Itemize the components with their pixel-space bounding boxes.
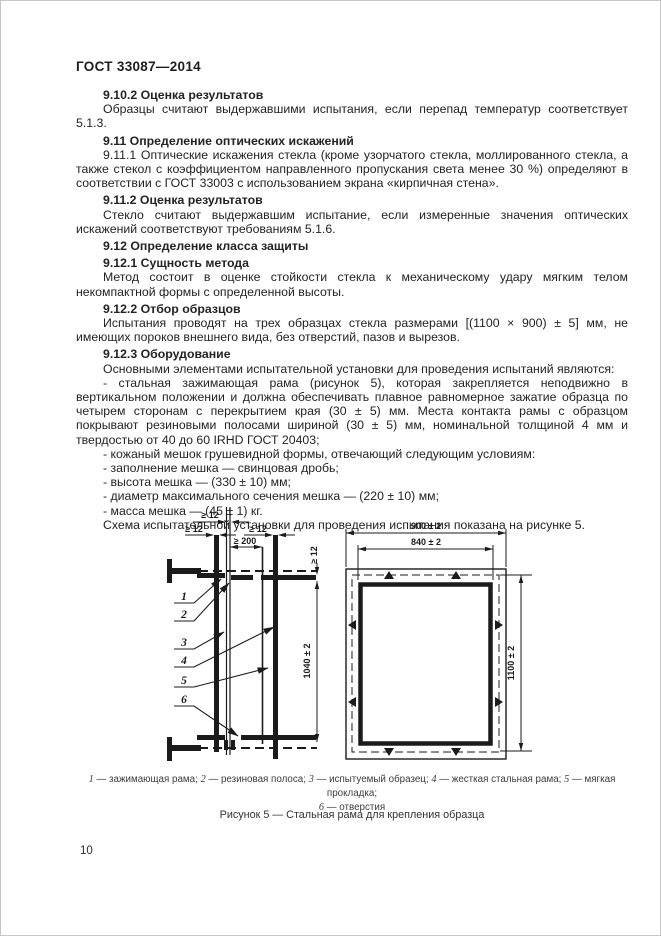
- front-dimensions: 900 ± 2 840 ± 2 1100 ± 2: [346, 521, 532, 751]
- legend-item-text: жесткая стальная рама: [452, 774, 559, 785]
- callout-number: 4: [180, 655, 187, 667]
- callouts: 1 2 3 4 5 6: [174, 579, 274, 736]
- paragraph: Метод состоит в оценке стойкости стекла …: [76, 270, 628, 298]
- dimension-label: 840 ± 2: [411, 537, 441, 547]
- document-header: ГОСТ 33087—2014: [76, 59, 201, 74]
- dimension-label: ≥ 12: [185, 524, 202, 534]
- paragraph: Испытания проводят на трех образцах стек…: [76, 316, 628, 344]
- dimension-label: 900 ± 2: [411, 521, 441, 531]
- callout-number: 2: [180, 609, 187, 621]
- legend-item-number: 1: [89, 774, 94, 785]
- callout-number: 6: [181, 694, 187, 706]
- legend-item-text: испытуемый образец: [329, 774, 426, 785]
- section-dimensions: ≥ 12 ≥ 12 ≥ 12 ≥ 200 ≥ 12: [185, 510, 319, 742]
- dimension-label: 1100 ± 2: [506, 646, 516, 680]
- front-view: 900 ± 2 840 ± 2 1100 ± 2: [346, 521, 532, 759]
- legend-item-number: 5: [564, 774, 569, 785]
- callout-number: 1: [181, 591, 187, 603]
- clamping-frame-opening: [361, 585, 491, 744]
- section-view: ≥ 12 ≥ 12 ≥ 12 ≥ 200 ≥ 12: [167, 507, 319, 761]
- figure-caption: Рисунок 5 — Стальная рама для крепления …: [76, 809, 628, 821]
- figure-legend-line: 1 — зажимающая рама; 2 — резиновая полос…: [76, 773, 628, 801]
- paragraph: - стальная зажимающая рама (рисунок 5), …: [76, 376, 628, 447]
- callout-number: 5: [181, 675, 187, 687]
- paragraph: 9.11.1 Оптические искажения стекла (кром…: [76, 148, 628, 191]
- legend-item-text: резиновая полоса: [221, 774, 303, 785]
- paragraph: - заполнение мешка — свинцовая дробь;: [76, 461, 628, 475]
- section-heading: 9.10.2 Оценка результатов: [76, 88, 628, 102]
- section-heading: 9.12.2 Отбор образцов: [76, 302, 628, 316]
- section-heading: 9.11 Определение оптических искажений: [76, 134, 628, 148]
- hole-markers: [348, 571, 503, 756]
- legend-item-text: зажимающая рама: [109, 774, 195, 785]
- body-text: 9.10.2 Оценка результатовОбразцы считают…: [76, 85, 628, 532]
- dimension-label: 1040 ± 2: [302, 644, 312, 679]
- bolt-bottom: [167, 737, 201, 761]
- steel-frame-plate: [273, 535, 278, 759]
- legend-item-number: 3: [309, 774, 314, 785]
- callout-number: 3: [180, 637, 187, 649]
- hole-centerline: [352, 575, 499, 752]
- dimension-label: ≥ 12: [249, 524, 266, 534]
- section-heading: 9.12 Определение класса защиты: [76, 239, 628, 253]
- dimension-label: ≥ 12: [201, 510, 218, 520]
- outer-frame: [346, 569, 506, 759]
- bolt-top: [167, 559, 201, 583]
- paragraph: Стекло считают выдержавшим испытание, ес…: [76, 208, 628, 236]
- page-number: 10: [80, 845, 93, 857]
- dimension-label: ≥ 12: [309, 546, 319, 563]
- legend-item-number: 4: [431, 774, 436, 785]
- clamping-frame-plate: [214, 535, 219, 752]
- section-heading: 9.12.3 Оборудование: [76, 347, 628, 361]
- figure-drawing: ≥ 12 ≥ 12 ≥ 12 ≥ 200 ≥ 12: [141, 497, 561, 787]
- dimension-label: ≥ 200: [234, 536, 256, 546]
- legend-item-number: 2: [201, 774, 206, 785]
- section-heading: 9.12.1 Сущность метода: [76, 256, 628, 270]
- paragraph: Образцы считают выдержавшими испытания, …: [76, 102, 628, 130]
- paragraph: - высота мешка — (330 ± 10) мм;: [76, 475, 628, 489]
- document-page: ГОСТ 33087—2014 9.10.2 Оценка результато…: [0, 0, 661, 936]
- paragraph: - кожаный мешок грушевидной формы, отвеч…: [76, 447, 628, 461]
- section-heading: 9.11.2 Оценка результатов: [76, 193, 628, 207]
- paragraph: Основными элементами испытательной устан…: [76, 362, 628, 376]
